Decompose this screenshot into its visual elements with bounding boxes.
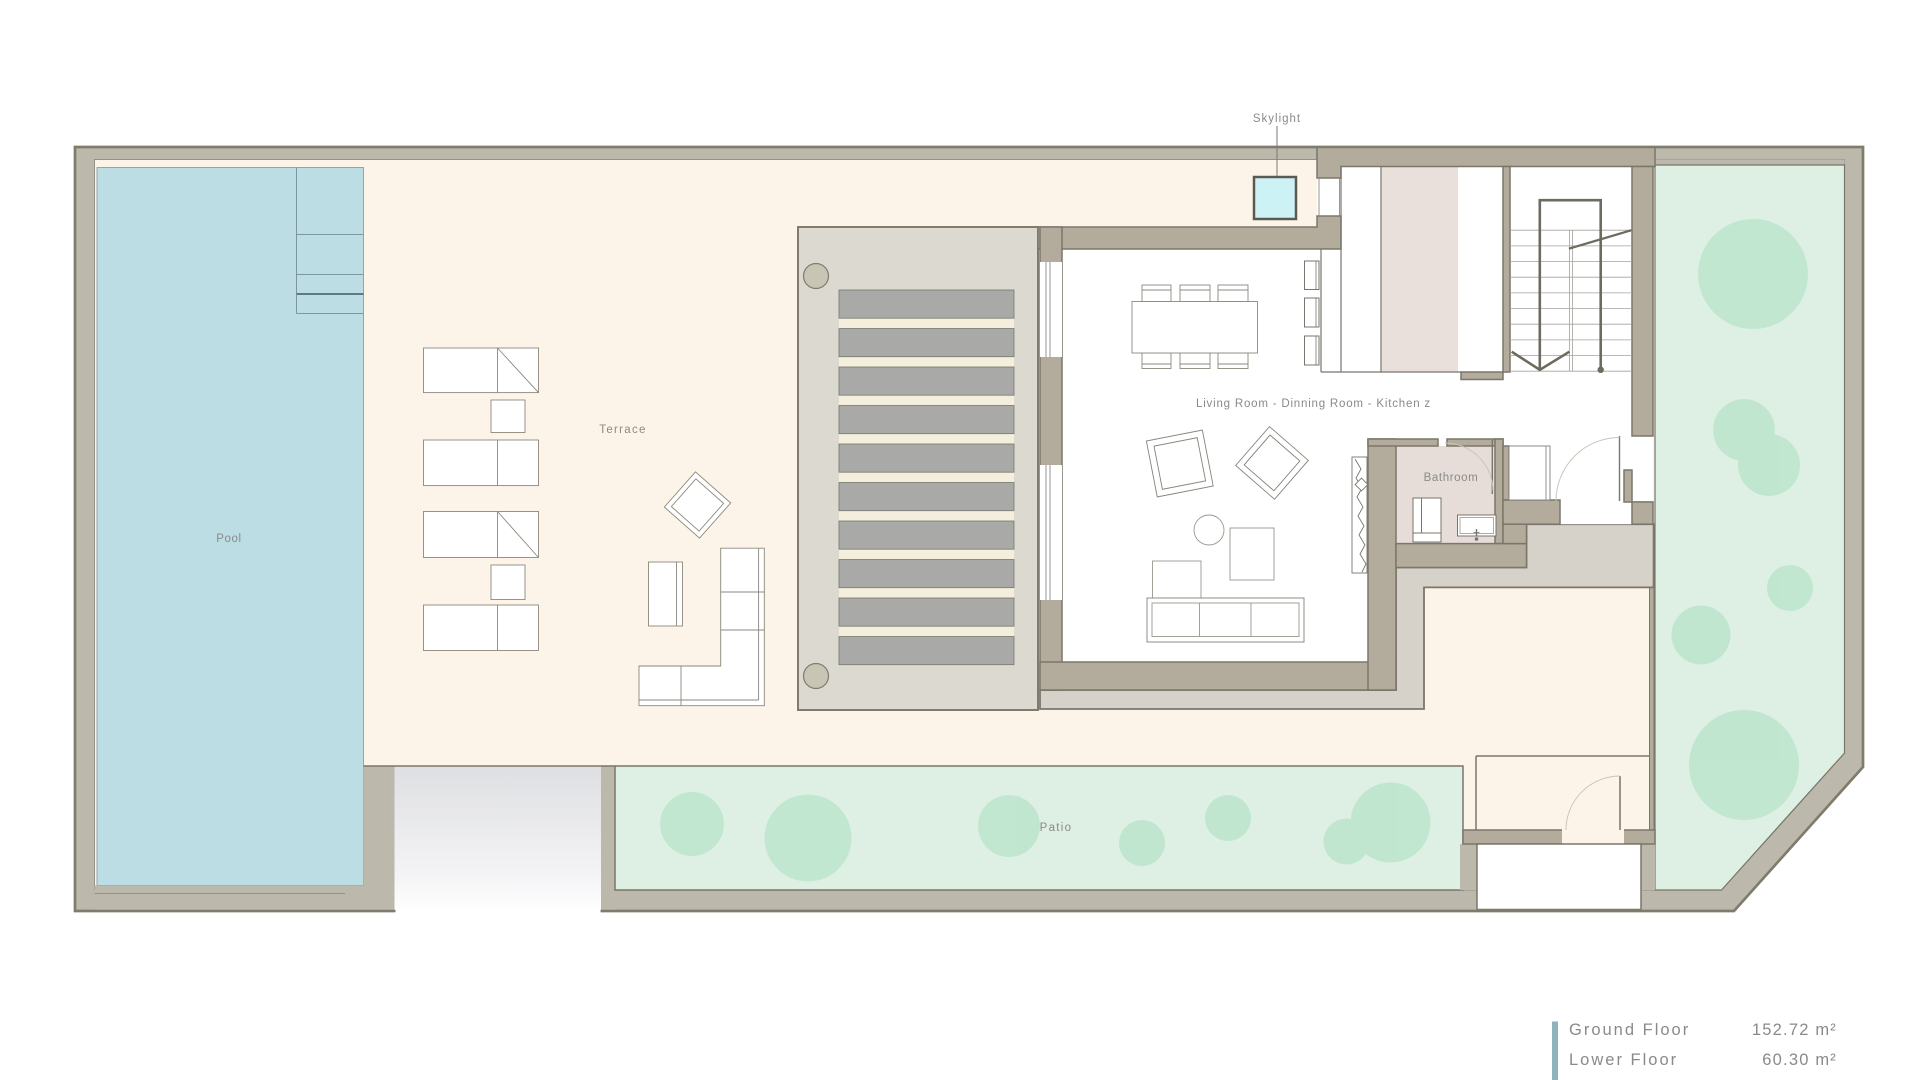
svg-text:Ground Floor: Ground Floor	[1569, 1021, 1690, 1039]
svg-text:152.72 m²: 152.72 m²	[1752, 1021, 1837, 1039]
svg-text:Lower Floor: Lower Floor	[1569, 1051, 1678, 1069]
svg-text:Terrace: Terrace	[599, 424, 646, 436]
svg-text:60.30 m²: 60.30 m²	[1762, 1051, 1837, 1069]
svg-text:Pool: Pool	[216, 533, 241, 545]
svg-text:Living Room - Dinning Room - K: Living Room - Dinning Room - Kitchen z	[1196, 398, 1431, 410]
svg-text:Bathroom: Bathroom	[1424, 472, 1479, 484]
svg-text:Patio: Patio	[1040, 822, 1073, 834]
svg-text:Skylight: Skylight	[1253, 113, 1301, 125]
